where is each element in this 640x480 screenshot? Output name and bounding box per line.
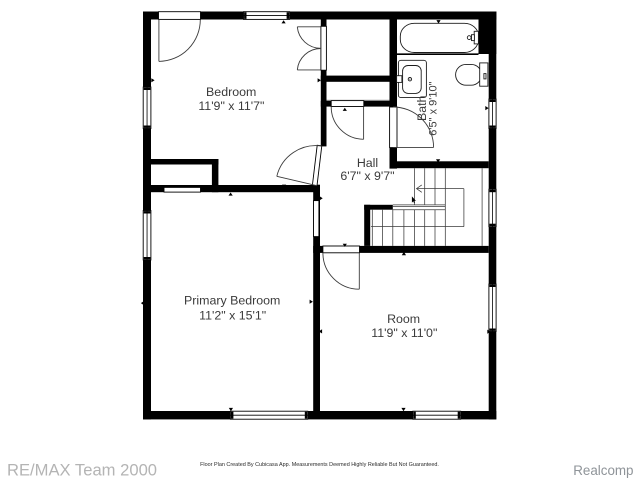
svg-text:Primary Bedroom: Primary Bedroom xyxy=(184,294,280,308)
svg-text:Room: Room xyxy=(387,312,420,326)
svg-text:11'9" x 11'7": 11'9" x 11'7" xyxy=(198,99,264,113)
svg-text:6'5" x 9'10": 6'5" x 9'10" xyxy=(427,81,439,135)
svg-text:RE/MAX Team 2000: RE/MAX Team 2000 xyxy=(7,460,157,479)
svg-text:Bedroom: Bedroom xyxy=(206,85,256,99)
svg-text:11'9" x 11'0": 11'9" x 11'0" xyxy=(371,326,437,340)
svg-text:6'7" x 9'7": 6'7" x 9'7" xyxy=(340,169,394,183)
svg-text:Realcomp: Realcomp xyxy=(573,463,633,478)
svg-text:11'2" x 15'1": 11'2" x 15'1" xyxy=(199,309,266,323)
svg-text:Floor Plan Created By Cubicasa: Floor Plan Created By Cubicasa App. Meas… xyxy=(200,462,439,468)
svg-text:Hall: Hall xyxy=(357,156,378,170)
